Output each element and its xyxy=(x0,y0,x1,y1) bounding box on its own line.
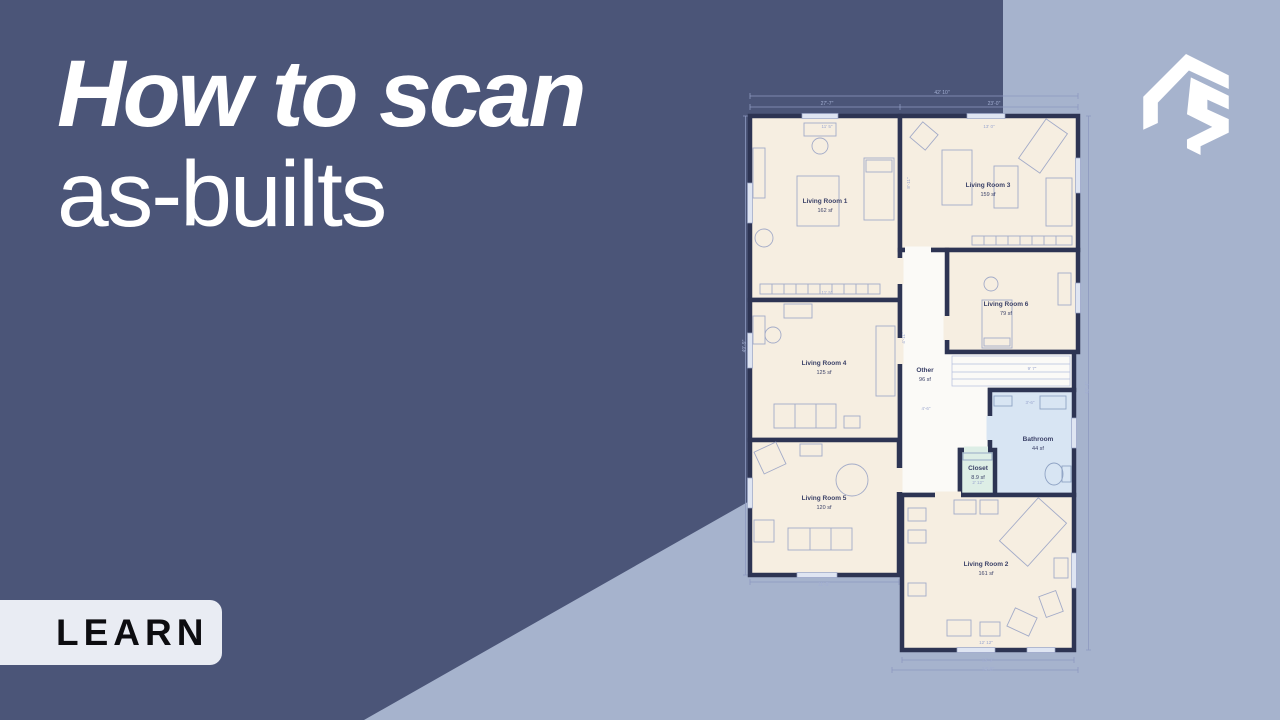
room-label: 161 sf xyxy=(979,571,994,577)
angular-r-logo-icon xyxy=(1142,54,1230,156)
dimension-label: 49'-9" xyxy=(742,339,748,352)
room-label: 79 sf xyxy=(1000,311,1012,317)
room-label: Living Room 1 xyxy=(803,198,848,205)
title-line-2: as-builts xyxy=(57,144,584,244)
dimension-label: 2' 12" xyxy=(972,480,984,485)
room-label: 120 sf xyxy=(817,505,832,511)
dimension-label: 43'-4" xyxy=(1085,381,1091,394)
floor-plan: Living Room 1162 sfLiving Room 3159 sfLi… xyxy=(742,88,1092,673)
page-title: How to scan as-builts xyxy=(57,44,584,244)
room-label: 125 sf xyxy=(817,370,832,376)
room-label: Bathroom xyxy=(1023,436,1054,443)
room-label: Living Room 2 xyxy=(964,561,1009,568)
room-label: Living Room 4 xyxy=(802,360,847,367)
room-label: Living Room 6 xyxy=(984,301,1029,308)
dimension-label: 27'-7" xyxy=(821,101,834,107)
learn-badge: LEARN xyxy=(0,600,222,665)
room-label: Other xyxy=(916,367,934,374)
dimension-label: 4'-11" xyxy=(901,332,906,344)
dimension-label: 13'-2" xyxy=(982,658,995,664)
dimension-label: 42' 10" xyxy=(934,90,949,96)
room-label: 96 sf xyxy=(919,377,931,383)
room-label: Living Room 5 xyxy=(802,495,847,502)
dimension-label: 3'-6" xyxy=(1026,400,1035,405)
room-label: 44 sf xyxy=(1032,446,1044,452)
dimension-label: 12' 12" xyxy=(979,640,993,645)
dimension-label: 11'-5" xyxy=(818,582,831,588)
dimension-label: 9' 7" xyxy=(1028,366,1037,371)
thumbnail-canvas: How to scan as-builts LEARN xyxy=(0,0,1280,720)
room-label: Living Room 3 xyxy=(966,182,1011,189)
dimension-label: 13' 0" xyxy=(983,124,995,129)
dimension-label: 11' 5" xyxy=(822,124,833,129)
room-label: 162 sf xyxy=(818,208,833,214)
title-line-1: How to scan xyxy=(57,44,584,144)
dimension-label: 4'-6" xyxy=(922,406,931,411)
dimension-label: 11' 5" xyxy=(822,290,833,295)
dimension-label: 8'-11" xyxy=(906,177,911,189)
dimension-label: 23'-0" xyxy=(988,101,1001,107)
room-label: Closet xyxy=(968,465,989,472)
room-shapes xyxy=(750,116,1078,650)
room-label: 159 sf xyxy=(981,192,996,198)
learn-badge-label: LEARN xyxy=(56,612,208,654)
dimension-label: 14'-8" xyxy=(982,667,995,673)
